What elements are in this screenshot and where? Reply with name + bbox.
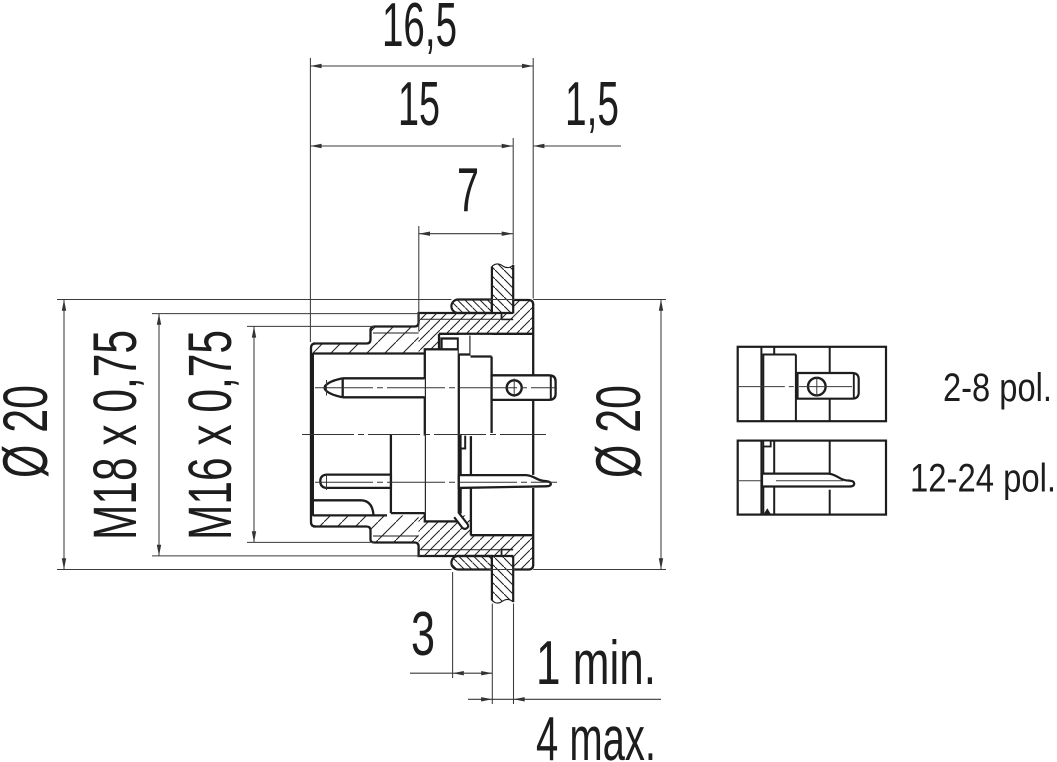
svg-text:Ø 20: Ø 20: [584, 385, 654, 478]
svg-text:4 max.: 4 max.: [536, 705, 656, 762]
svg-text:16,5: 16,5: [382, 0, 457, 60]
svg-text:1,5: 1,5: [565, 70, 619, 139]
svg-text:2-8 pol.: 2-8 pol.: [943, 366, 1052, 410]
svg-text:Ø 20: Ø 20: [0, 385, 61, 478]
svg-text:M16 x 0,75: M16 x 0,75: [176, 330, 244, 540]
svg-text:7: 7: [457, 156, 479, 225]
svg-text:15: 15: [398, 70, 440, 139]
svg-text:M18 x 0,75: M18 x 0,75: [81, 330, 149, 540]
svg-text:1 min.: 1 min.: [536, 629, 656, 698]
svg-text:12-24 pol.: 12-24 pol.: [910, 457, 1056, 501]
svg-text:3: 3: [411, 600, 435, 669]
